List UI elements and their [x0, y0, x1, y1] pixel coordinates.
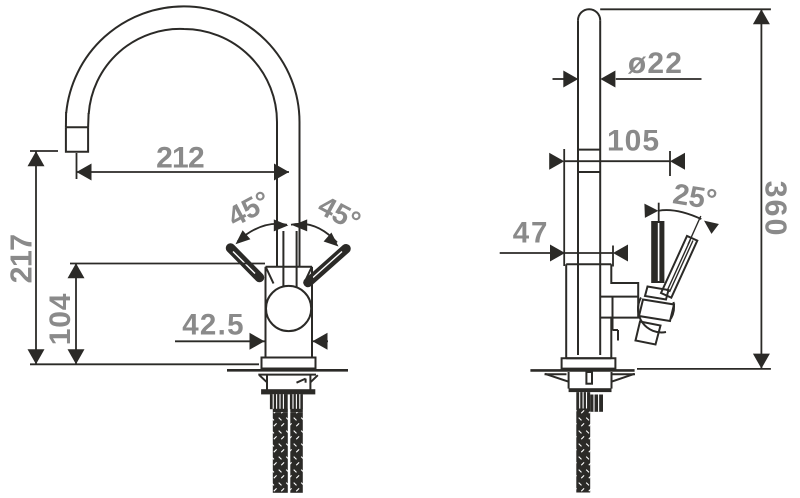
svg-text:25°: 25° — [671, 178, 719, 216]
svg-text:105: 105 — [607, 125, 660, 158]
svg-text:45°: 45° — [223, 185, 276, 233]
svg-text:42.5: 42.5 — [182, 309, 245, 342]
svg-text:212: 212 — [156, 142, 204, 175]
svg-text:47: 47 — [513, 217, 549, 250]
svg-text:217: 217 — [5, 235, 39, 284]
svg-text:104: 104 — [44, 293, 77, 345]
svg-text:45°: 45° — [313, 190, 366, 238]
svg-text:ø22: ø22 — [628, 47, 683, 80]
svg-text:360: 360 — [758, 181, 792, 238]
